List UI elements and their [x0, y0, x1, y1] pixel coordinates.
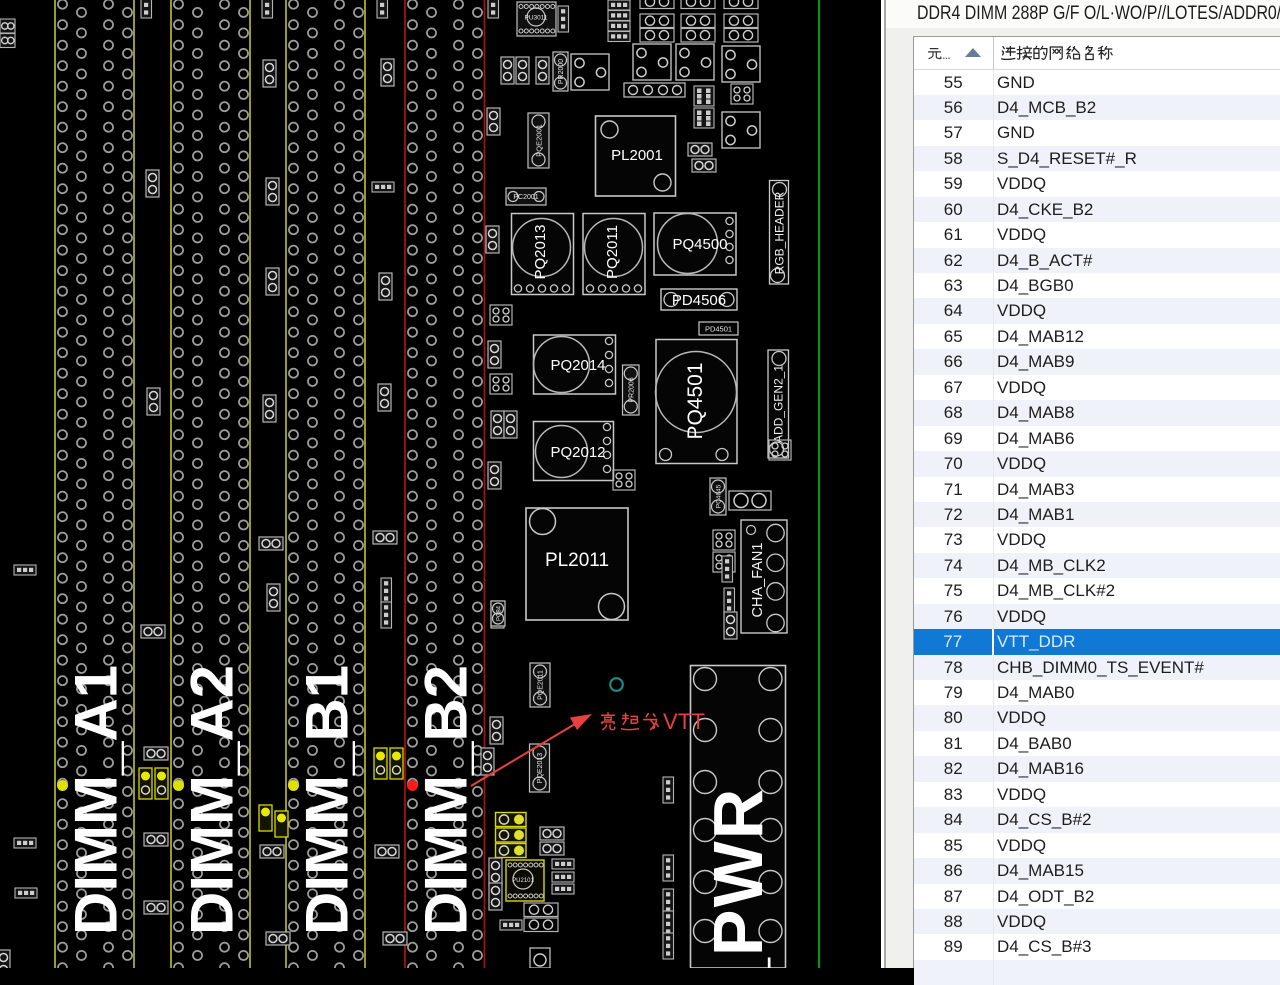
svg-text:PQ2013: PQ2013 [532, 224, 549, 279]
svg-text:_PWR: _PWR [699, 787, 777, 968]
svg-text:DIMM_A1: DIMM_A1 [62, 665, 129, 935]
svg-text:PD4501: PD4501 [705, 325, 732, 334]
svg-text:CHA_FAN1: CHA_FAN1 [750, 543, 766, 618]
svg-text:PQ4501: PQ4501 [684, 362, 707, 439]
svg-text:PQE2011: PQE2011 [538, 670, 545, 700]
svg-text:PC2001: PC2001 [513, 194, 538, 201]
svg-text:PU3011: PU3011 [524, 15, 547, 22]
svg-text:PR2006: PR2006 [628, 377, 635, 402]
svg-text:PL2001: PL2001 [611, 147, 663, 164]
svg-text:PL2011: PL2011 [545, 550, 609, 571]
svg-text:PU2101: PU2101 [512, 878, 534, 884]
svg-text:PQ2012: PQ2012 [550, 444, 605, 461]
svg-text:PC84: PC84 [496, 605, 502, 621]
svg-text:DIMM_B2: DIMM_B2 [413, 665, 480, 935]
svg-text:PC4645: PC4645 [715, 484, 722, 508]
svg-text:PD4506: PD4506 [672, 292, 726, 309]
svg-text:DIMM_A2: DIMM_A2 [178, 665, 245, 935]
svg-text:PQ2014: PQ2014 [550, 357, 605, 374]
svg-text:DIMM_B1: DIMM_B1 [293, 665, 360, 935]
svg-text:ADD_GEN2_1: ADD_GEN2_1 [772, 365, 786, 443]
svg-text:PQ4500: PQ4500 [672, 236, 727, 253]
svg-text:PQ2011: PQ2011 [604, 225, 621, 279]
svg-text:PR2000: PR2000 [558, 59, 565, 84]
svg-text:PQE2001: PQE2001 [534, 124, 543, 157]
svg-text:PQE2013: PQE2013 [537, 753, 544, 783]
svg-text:RGB_HEADER: RGB_HEADER [773, 191, 787, 274]
